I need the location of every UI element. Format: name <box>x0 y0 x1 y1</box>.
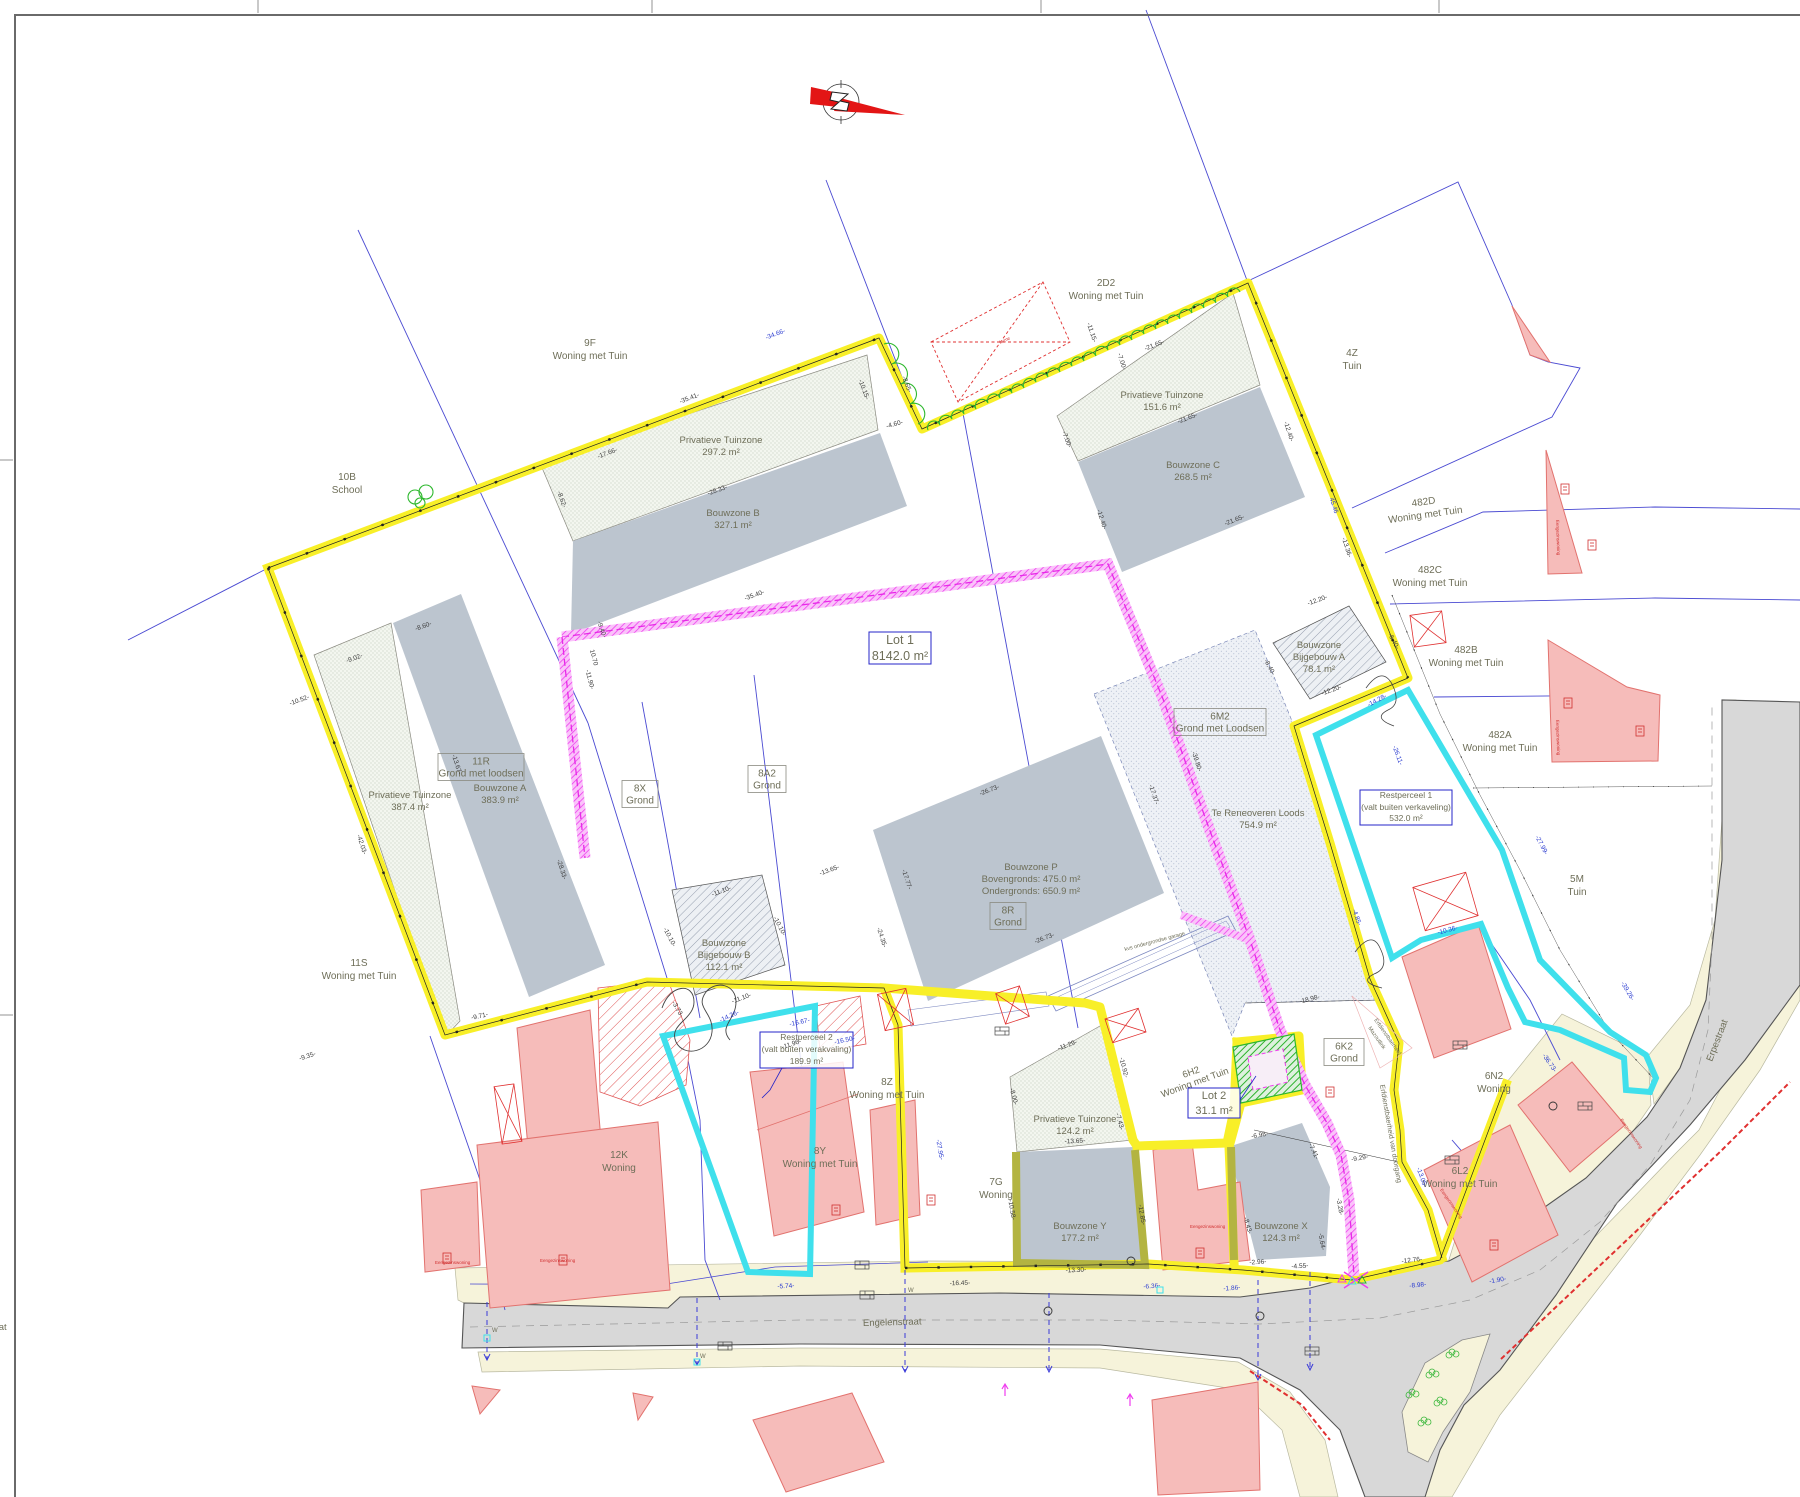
svg-text:78.1 m²: 78.1 m² <box>1303 664 1335 675</box>
svg-text:11R: 11R <box>472 757 490 768</box>
svg-text:8142.0 m²: 8142.0 m² <box>872 649 928 663</box>
svg-text:Privatieve Tuinzone: Privatieve Tuinzone <box>1034 1114 1117 1125</box>
svg-text:Woning met Tuin: Woning met Tuin <box>1423 1179 1498 1190</box>
svg-text:Eengezinswoning: Eengezinswoning <box>1190 1224 1226 1229</box>
svg-text:6L2: 6L2 <box>1452 1166 1469 1177</box>
svg-text:Privatieve Tuinzone: Privatieve Tuinzone <box>1121 390 1204 401</box>
svg-text:Woning met Tuin: Woning met Tuin <box>1429 658 1504 669</box>
svg-text:Bijgebouw B: Bijgebouw B <box>698 950 751 961</box>
svg-text:Woning: Woning <box>1477 1084 1511 1095</box>
svg-text:Bouwzone A: Bouwzone A <box>474 783 527 794</box>
svg-text:10B: 10B <box>338 472 356 483</box>
svg-text:Tuin: Tuin <box>1342 361 1361 372</box>
svg-text:Woning met Tuin: Woning met Tuin <box>783 1159 858 1170</box>
svg-text:Bouwzone P: Bouwzone P <box>1004 862 1057 873</box>
svg-text:Woning met Tuin: Woning met Tuin <box>1393 578 1468 589</box>
svg-text:189.9 m²: 189.9 m² <box>790 1056 824 1066</box>
svg-text:754.9 m²: 754.9 m² <box>1239 820 1277 831</box>
svg-text:6M2: 6M2 <box>1210 712 1230 723</box>
svg-text:-5.74-: -5.74- <box>777 1283 794 1291</box>
svg-text:9F: 9F <box>584 338 596 349</box>
svg-text:(valt buiten verkaveling): (valt buiten verkaveling) <box>1361 802 1451 812</box>
svg-text:Bouwzone B: Bouwzone B <box>706 508 759 519</box>
svg-text:Eengezinswoning: Eengezinswoning <box>540 1258 576 1263</box>
svg-text:Restperceel 2: Restperceel 2 <box>780 1032 833 1042</box>
svg-text:W: W <box>700 1354 706 1360</box>
svg-text:Bouwzone C: Bouwzone C <box>1166 460 1220 471</box>
svg-text:Bouwzone X: Bouwzone X <box>1254 1221 1308 1232</box>
svg-text:W: W <box>492 1328 498 1334</box>
svg-text:Grond met Loodsen: Grond met Loodsen <box>1176 724 1264 735</box>
svg-text:Lot 2: Lot 2 <box>1202 1090 1226 1102</box>
svg-text:Woning met Tuin: Woning met Tuin <box>553 351 628 362</box>
svg-text:Grond met loodsen: Grond met loodsen <box>438 769 523 780</box>
svg-text:482B: 482B <box>1454 645 1478 656</box>
svg-text:7G: 7G <box>989 1177 1003 1188</box>
svg-text:Te Reneoveren Loods: Te Reneoveren Loods <box>1212 808 1305 819</box>
svg-text:Ondergronds: 650.9 m²: Ondergronds: 650.9 m² <box>982 886 1080 897</box>
svg-text:8Z: 8Z <box>881 1077 893 1088</box>
svg-text:8A2: 8A2 <box>758 769 776 780</box>
svg-text:-13.65-: -13.65- <box>1064 1137 1085 1145</box>
svg-text:Grond: Grond <box>626 796 654 807</box>
svg-text:-4.55-: -4.55- <box>1291 1263 1308 1271</box>
svg-text:-1.86-: -1.86- <box>1223 1284 1240 1292</box>
svg-text:6K2: 6K2 <box>1335 1042 1353 1053</box>
svg-text:Bijgebouw A: Bijgebouw A <box>1293 652 1346 663</box>
svg-text:Engelenstraat: Engelenstraat <box>0 1322 7 1333</box>
svg-text:31.1 m²: 31.1 m² <box>1195 1105 1233 1117</box>
svg-text:Bouwzone: Bouwzone <box>1297 640 1341 651</box>
svg-text:297.2 m²: 297.2 m² <box>702 447 740 458</box>
svg-text:-13.30-: -13.30- <box>1065 1266 1086 1274</box>
svg-text:Privatieve Tuinzone: Privatieve Tuinzone <box>680 435 763 446</box>
svg-text:School: School <box>332 485 363 496</box>
svg-text:-2.96-: -2.96- <box>1249 1259 1266 1267</box>
svg-text:124.2 m²: 124.2 m² <box>1056 1126 1094 1137</box>
svg-text:2D2: 2D2 <box>1097 278 1116 289</box>
svg-text:177.2 m²: 177.2 m² <box>1061 1233 1099 1244</box>
svg-text:151.6 m²: 151.6 m² <box>1143 402 1181 413</box>
svg-text:8X: 8X <box>634 784 647 795</box>
svg-text:Woning: Woning <box>602 1163 636 1174</box>
svg-text:Woning met Tuin: Woning met Tuin <box>1463 743 1538 754</box>
svg-text:532.0 m²: 532.0 m² <box>1389 813 1423 823</box>
svg-text:4Z: 4Z <box>1346 348 1358 359</box>
svg-text:327.1 m²: 327.1 m² <box>714 520 752 531</box>
svg-text:6N2: 6N2 <box>1485 1071 1504 1082</box>
svg-text:11S: 11S <box>350 958 367 969</box>
svg-text:Tuin: Tuin <box>1567 887 1586 898</box>
svg-text:Eengezinswoning: Eengezinswoning <box>435 1260 471 1265</box>
svg-text:8Y: 8Y <box>814 1146 827 1157</box>
svg-text:Engelenstraat: Engelenstraat <box>863 1316 922 1329</box>
svg-text:Bouwzone Y: Bouwzone Y <box>1053 1221 1107 1232</box>
svg-text:Grond: Grond <box>1330 1054 1358 1065</box>
svg-text:482C: 482C <box>1418 565 1442 576</box>
svg-text:124.3 m²: 124.3 m² <box>1262 1233 1300 1244</box>
svg-text:Bovengronds: 475.0 m²: Bovengronds: 475.0 m² <box>982 874 1081 885</box>
svg-text:Grond: Grond <box>994 918 1022 929</box>
svg-text:Restperceel 1: Restperceel 1 <box>1380 790 1433 800</box>
svg-text:112.1 m²: 112.1 m² <box>706 962 743 973</box>
svg-text:387.4 m²: 387.4 m² <box>391 802 429 813</box>
svg-text:Woning met Tuin: Woning met Tuin <box>850 1090 925 1101</box>
svg-text:Woning met Tuin: Woning met Tuin <box>322 971 397 982</box>
svg-text:Bouwzone: Bouwzone <box>702 938 746 949</box>
svg-text:5M: 5M <box>1570 874 1584 885</box>
svg-text:482A: 482A <box>1488 730 1512 741</box>
svg-text:8R: 8R <box>1002 906 1015 917</box>
svg-text:12K: 12K <box>610 1150 628 1161</box>
svg-text:268.5 m²: 268.5 m² <box>1174 472 1212 483</box>
svg-text:Woning met Tuin: Woning met Tuin <box>1069 291 1144 302</box>
svg-text:Lot 1: Lot 1 <box>886 633 914 647</box>
svg-text:Grond: Grond <box>753 781 781 792</box>
svg-text:W: W <box>908 1288 914 1294</box>
svg-text:-16.45-: -16.45- <box>950 1280 971 1288</box>
svg-text:383.9 m²: 383.9 m² <box>481 795 519 806</box>
svg-text:Privatieve Tuinzone: Privatieve Tuinzone <box>369 790 452 801</box>
